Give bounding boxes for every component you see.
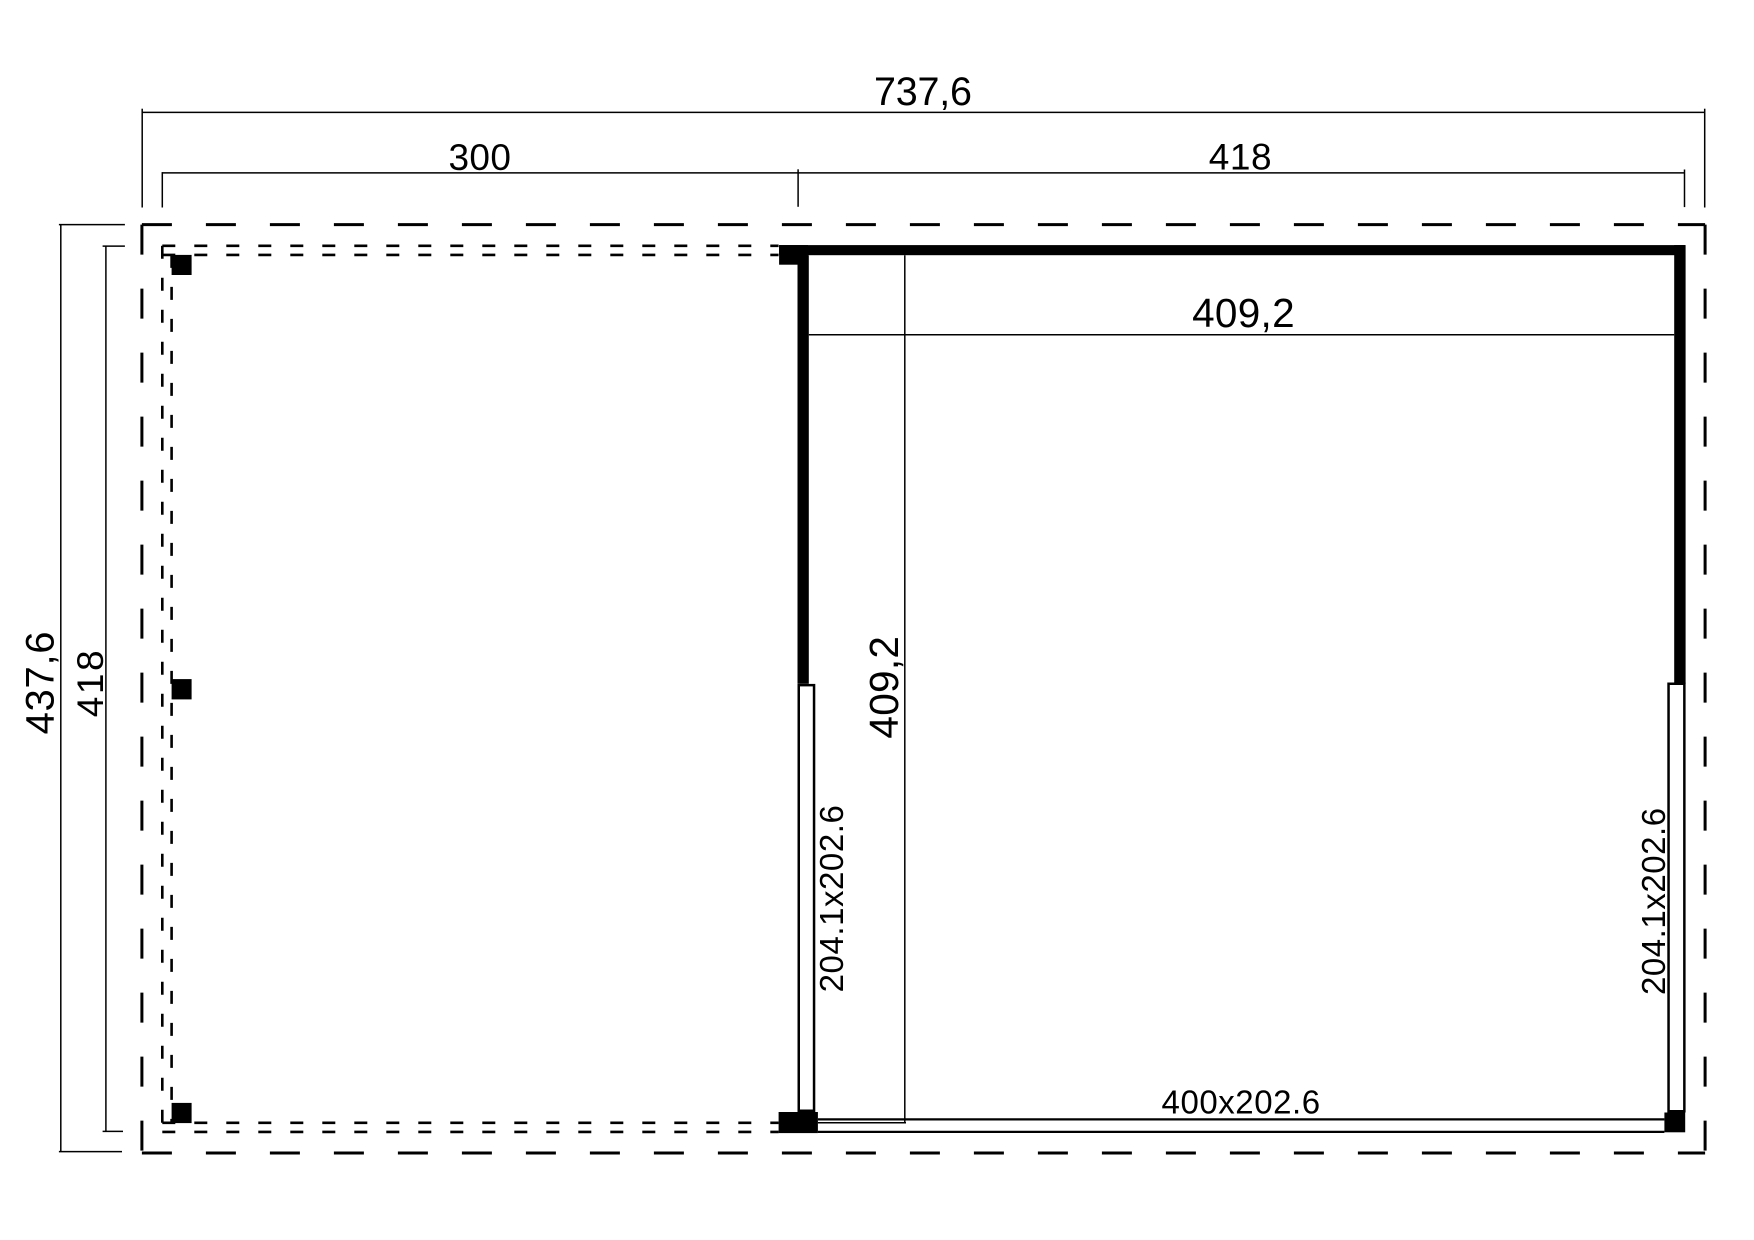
svg-text:737,6: 737,6 — [874, 70, 972, 114]
svg-text:418: 418 — [70, 648, 111, 717]
svg-text:409,2: 409,2 — [1192, 290, 1295, 336]
svg-text:409,2: 409,2 — [861, 636, 907, 739]
svg-text:204.1x202.6: 204.1x202.6 — [813, 805, 850, 993]
svg-text:418: 418 — [1209, 136, 1272, 177]
svg-text:300: 300 — [449, 137, 512, 178]
svg-text:437,6: 437,6 — [19, 631, 63, 735]
svg-text:400x202.6: 400x202.6 — [1162, 1083, 1321, 1120]
svg-text:204.1x202.6: 204.1x202.6 — [1635, 807, 1672, 995]
